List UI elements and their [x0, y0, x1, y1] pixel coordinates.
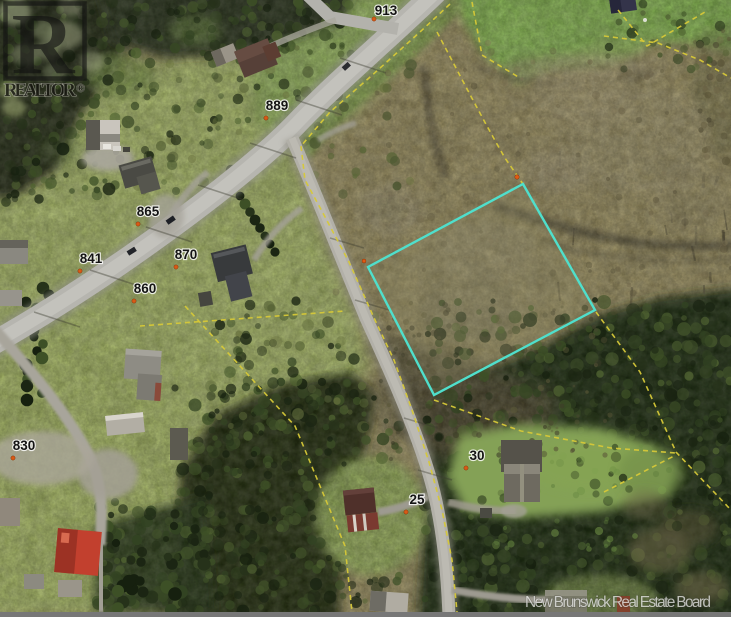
svg-text:841: 841	[80, 251, 103, 266]
svg-text:REALTOR: REALTOR	[4, 80, 76, 101]
svg-text:913: 913	[375, 3, 398, 18]
svg-text:25: 25	[409, 492, 425, 507]
svg-text:R: R	[12, 0, 76, 92]
svg-text:889: 889	[266, 98, 289, 113]
svg-text:860: 860	[134, 281, 157, 296]
svg-text:New Brunswick Real Estate Boar: New Brunswick Real Estate Board	[525, 594, 711, 611]
svg-text:830: 830	[13, 438, 36, 453]
svg-text:30: 30	[469, 448, 484, 463]
svg-text:®: ®	[76, 81, 85, 95]
svg-text:865: 865	[137, 204, 160, 219]
svg-text:870: 870	[175, 247, 198, 262]
